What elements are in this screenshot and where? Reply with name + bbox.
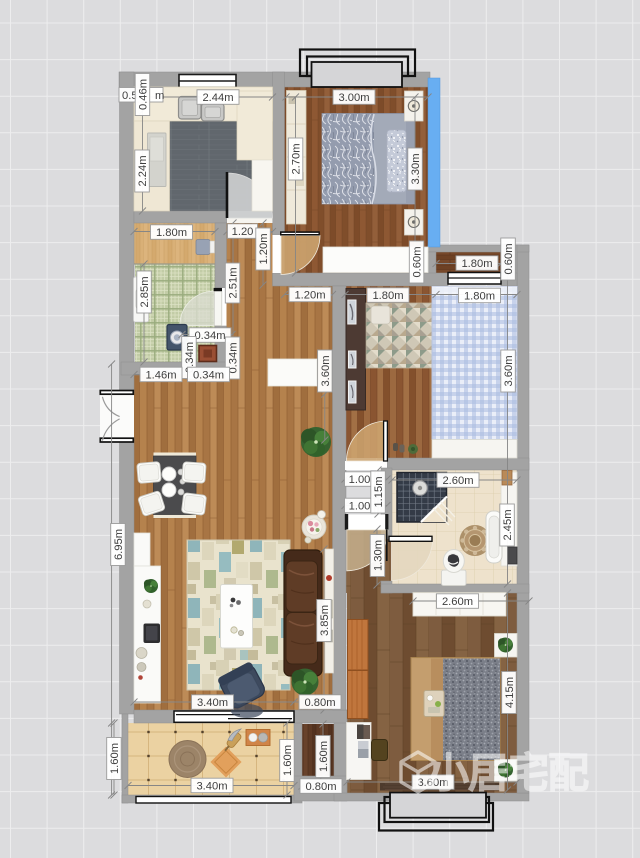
svg-text:0.34m: 0.34m [194,330,225,342]
svg-text:3.40m: 3.40m [197,697,228,709]
svg-text:2.70m: 2.70m [291,143,303,174]
svg-text:3.85m: 3.85m [319,605,331,636]
svg-text:2.24m: 2.24m [137,155,149,186]
svg-text:3.30m: 3.30m [410,153,422,184]
svg-text:1.60m: 1.60m [318,741,330,772]
svg-text:0.60m: 0.60m [503,243,515,274]
svg-text:2.45m: 2.45m [502,509,514,540]
svg-text:2.44m: 2.44m [202,92,233,104]
svg-text:1.80m: 1.80m [464,291,495,303]
svg-text:1.60m: 1.60m [109,743,121,774]
svg-text:1.00: 1.00 [349,474,371,486]
svg-text:1.20: 1.20 [232,226,254,238]
svg-text:小居宅配: 小居宅配 [428,750,589,796]
svg-text:1.15m: 1.15m [373,476,385,507]
svg-text:m: m [155,90,164,102]
svg-text:0.34m: 0.34m [193,370,224,382]
svg-text:3.00m: 3.00m [338,92,369,104]
svg-text:3.60m: 3.60m [503,355,515,386]
svg-text:1.30m: 1.30m [373,540,385,571]
svg-text:2.60m: 2.60m [442,596,473,608]
svg-text:0.60m: 0.60m [412,246,424,277]
svg-text:3.60m: 3.60m [320,355,332,386]
svg-text:2.51m: 2.51m [228,267,240,298]
svg-text:1.46m: 1.46m [145,370,176,382]
svg-text:1.80m: 1.80m [372,290,403,302]
svg-text:1.20m: 1.20m [258,233,270,264]
svg-text:0.46m: 0.46m [138,79,150,110]
svg-text:4.15m: 4.15m [504,677,516,708]
svg-text:1.20m: 1.20m [294,290,325,302]
svg-text:0.80m: 0.80m [304,697,335,709]
svg-text:6.95m: 6.95m [113,529,125,560]
svg-text:0.80m: 0.80m [305,781,336,793]
svg-text:2.60m: 2.60m [442,475,473,487]
svg-text:2.85m: 2.85m [139,276,151,307]
svg-text:1.80m: 1.80m [156,227,187,239]
svg-text:1.00: 1.00 [349,501,371,513]
svg-text:1.80m: 1.80m [461,258,492,270]
svg-text:3.40m: 3.40m [196,781,227,793]
svg-text:1.60m: 1.60m [282,745,294,776]
